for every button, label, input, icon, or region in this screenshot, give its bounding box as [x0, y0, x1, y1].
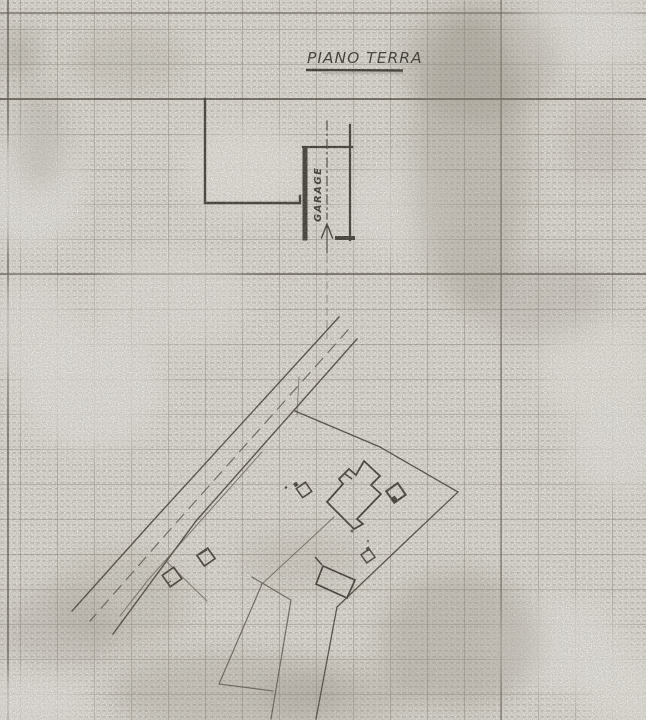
scan-grain-overlay	[0, 0, 646, 720]
scanned-plan-page: PIANO TERRA GARAGE	[0, 0, 646, 720]
floor-plan-scan: PIANO TERRA GARAGE	[0, 0, 646, 720]
